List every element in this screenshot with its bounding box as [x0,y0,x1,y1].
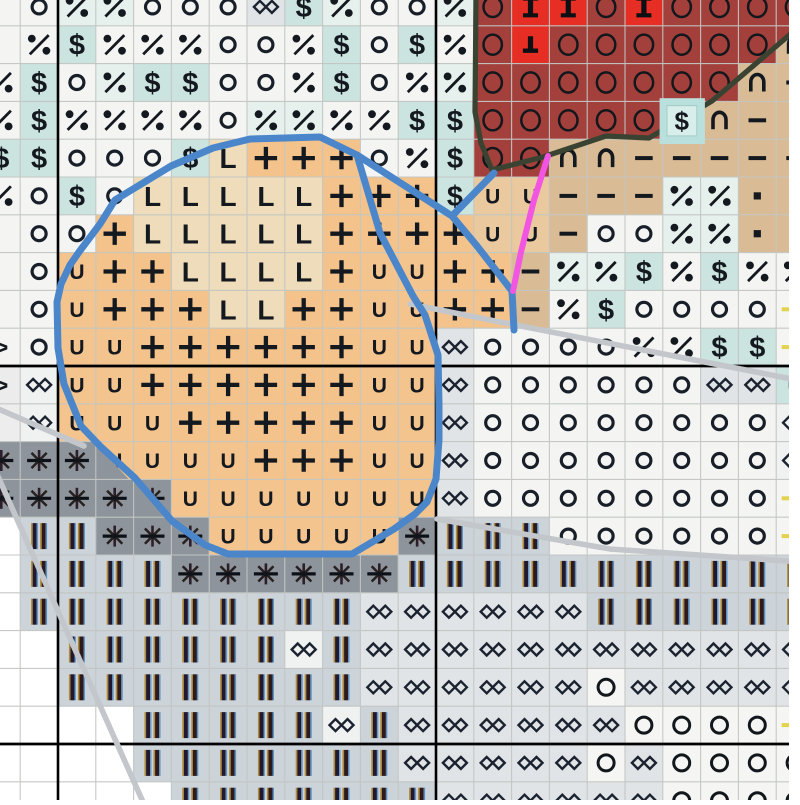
svg-text:$: $ [31,105,47,137]
svg-text:U: U [372,488,387,511]
svg-text:$: $ [333,68,349,100]
svg-text:L: L [257,257,274,288]
svg-text:U: U [69,337,84,360]
svg-text:$: $ [447,105,463,137]
svg-text:$: $ [69,30,85,62]
svg-text:U: U [107,337,122,360]
svg-text:L: L [144,181,161,212]
svg-text:L: L [295,257,312,288]
svg-text:$: $ [296,0,312,24]
svg-text:U: U [183,488,198,511]
svg-text:U: U [372,261,387,284]
svg-text:U: U [372,450,387,473]
svg-text:U: U [221,450,236,473]
svg-text:>: > [0,373,8,400]
svg-text:$: $ [636,257,652,289]
svg-text:U: U [410,412,425,435]
svg-text:$: $ [711,332,727,364]
svg-text:$: $ [144,68,160,100]
svg-text:L: L [220,294,237,325]
svg-text:U: U [485,186,500,209]
svg-text:L: L [295,181,312,212]
svg-text:U: U [145,412,160,435]
svg-text:U: U [372,337,387,360]
svg-text:L: L [182,219,199,250]
svg-text:>: > [0,335,8,362]
svg-text:L: L [182,181,199,212]
svg-text:L: L [144,219,161,250]
svg-text:U: U [183,450,198,473]
svg-text:U: U [69,299,84,322]
svg-text:L: L [220,181,237,212]
svg-text:U: U [258,526,273,549]
svg-text:$: $ [182,68,198,100]
svg-text:U: U [107,375,122,398]
svg-text:U: U [334,488,349,511]
svg-text:$: $ [31,143,47,175]
svg-text:U: U [410,450,425,473]
svg-text:L: L [220,219,237,250]
svg-text:$: $ [674,106,689,136]
svg-text:$: $ [69,181,85,213]
svg-text:U: U [296,488,311,511]
svg-text:U: U [485,223,500,246]
svg-text:U: U [410,337,425,360]
svg-text:$: $ [31,68,47,100]
svg-text:U: U [410,375,425,398]
svg-text:U: U [372,299,387,322]
svg-text:U: U [107,412,122,435]
svg-text:L: L [220,257,237,288]
svg-text:L: L [295,219,312,250]
svg-text:U: U [221,488,236,511]
svg-text:L: L [257,219,274,250]
svg-text:$: $ [749,332,765,364]
svg-text:$: $ [333,30,349,62]
svg-text:U: U [372,375,387,398]
svg-text:U: U [145,450,160,473]
svg-text:U: U [221,526,236,549]
svg-text:U: U [372,412,387,435]
svg-text:L: L [257,294,274,325]
svg-text:$: $ [447,143,463,175]
svg-text:U: U [334,526,349,549]
svg-text:$: $ [409,30,425,62]
svg-text:L: L [257,181,274,212]
svg-text:U: U [258,488,273,511]
svg-text:U: U [296,526,311,549]
svg-text:$: $ [598,294,614,326]
svg-text:U: U [410,261,425,284]
svg-text:$: $ [0,143,9,175]
svg-text:$: $ [711,257,727,289]
svg-text:L: L [182,257,199,288]
svg-text:$: $ [409,105,425,137]
